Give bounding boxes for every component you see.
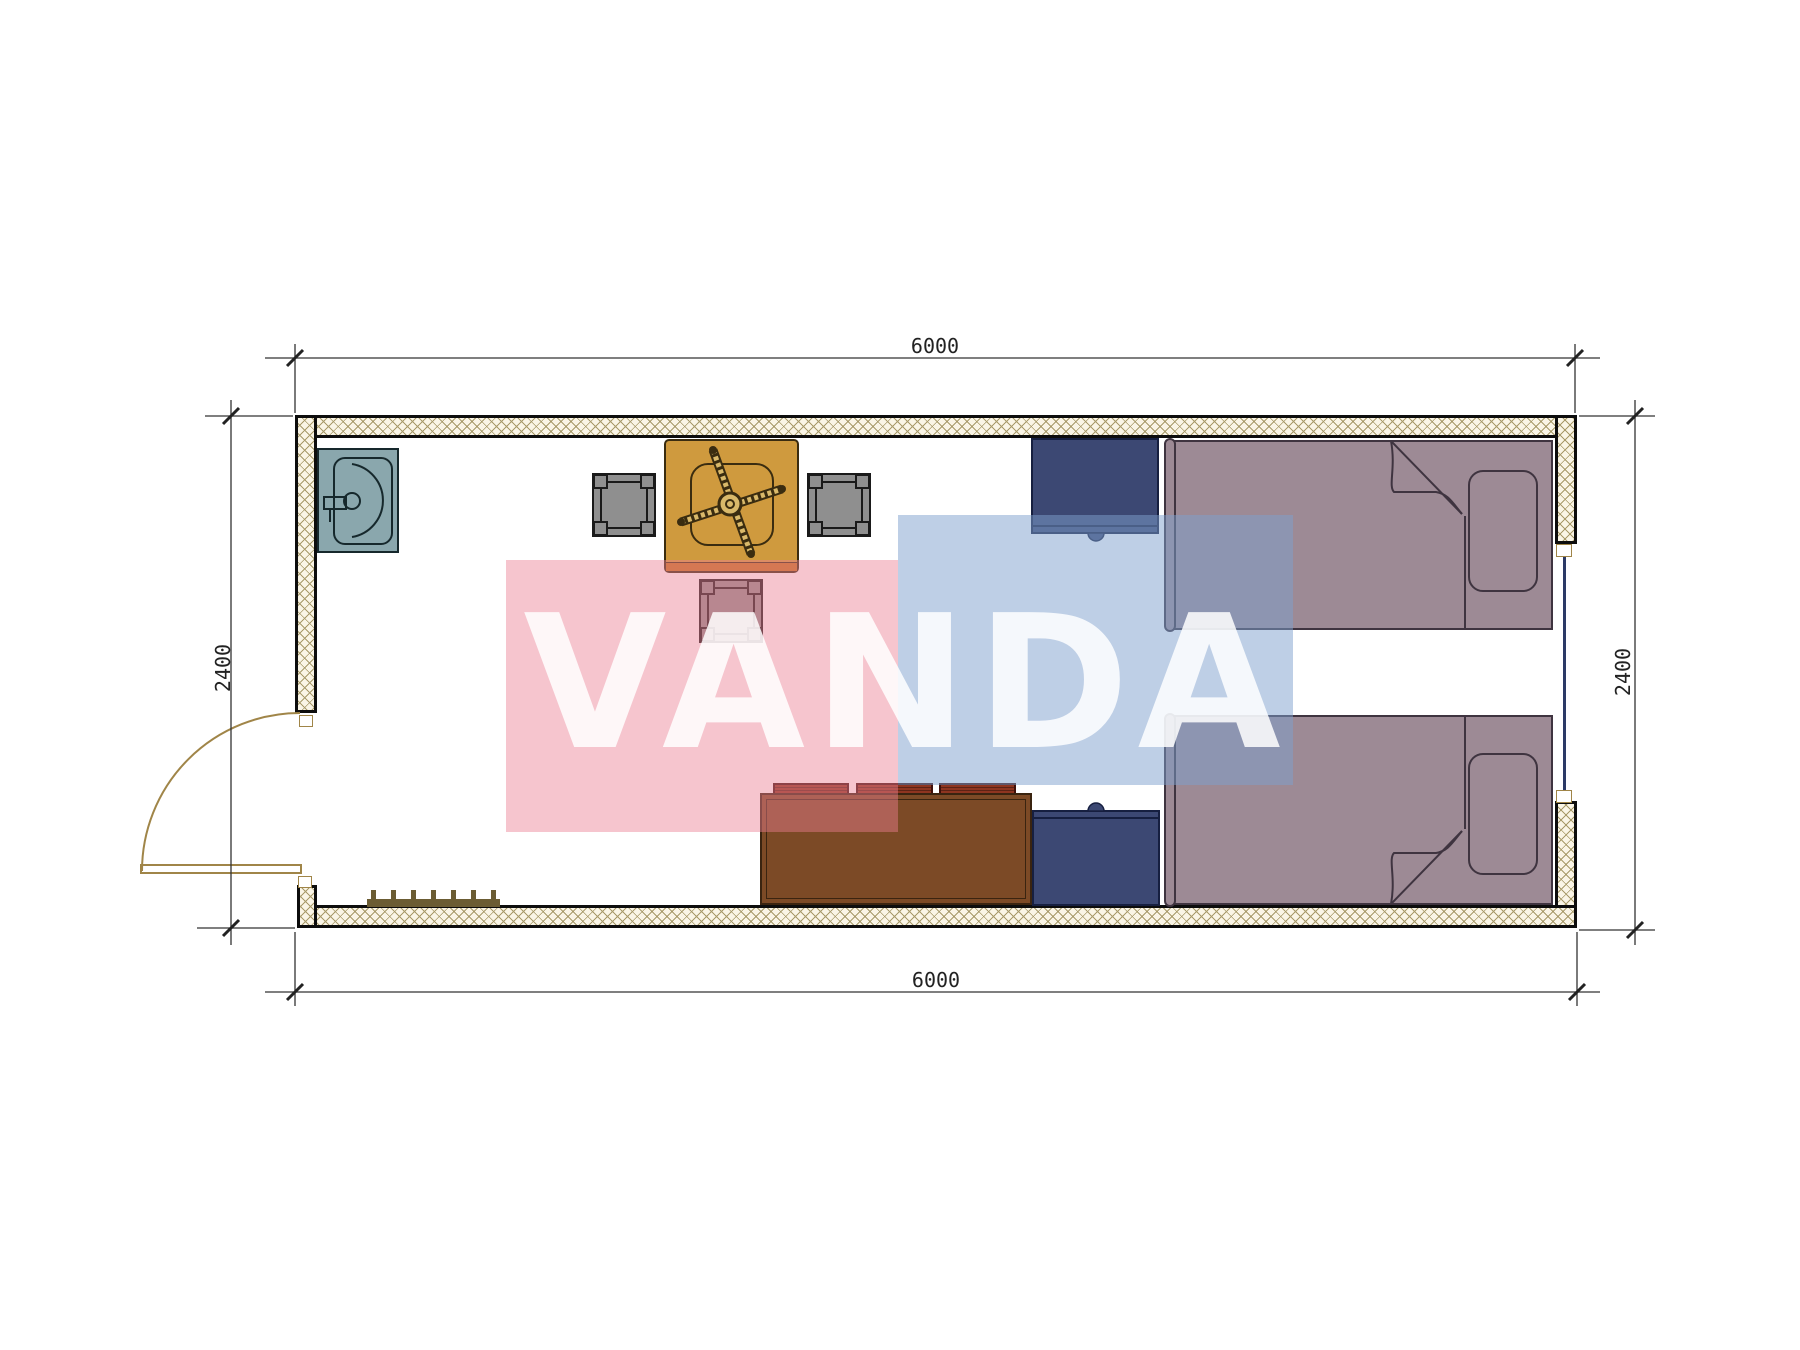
door-leaf bbox=[140, 864, 302, 874]
dim-label-left: 2400 bbox=[211, 644, 235, 692]
radiator-fin bbox=[451, 890, 456, 899]
radiator-fin bbox=[471, 890, 476, 899]
nightstand-front-rail bbox=[1034, 812, 1158, 819]
chair-post bbox=[855, 521, 870, 536]
chair-post bbox=[593, 521, 608, 536]
bed-pillow bbox=[1468, 470, 1538, 592]
window-jamb-bottom bbox=[1556, 790, 1572, 803]
radiator bbox=[367, 890, 500, 907]
dim-label-bottom: 6000 bbox=[912, 968, 960, 992]
chair-right bbox=[807, 473, 871, 537]
nightstand-lower bbox=[1032, 810, 1160, 906]
sink-faucet-stem bbox=[329, 510, 331, 522]
radiator-bar bbox=[367, 899, 500, 907]
chair-post bbox=[640, 474, 655, 489]
table-top-inner bbox=[690, 463, 774, 546]
dim-label-top: 6000 bbox=[911, 334, 959, 358]
window-glazing bbox=[1563, 557, 1566, 790]
sink-faucet-handle bbox=[323, 496, 347, 510]
chair-post bbox=[640, 521, 655, 536]
door-jamb-top bbox=[299, 715, 313, 727]
chair-post bbox=[593, 474, 608, 489]
wall-top bbox=[295, 415, 1577, 438]
door-swing-arc bbox=[142, 713, 300, 871]
wall-bottom bbox=[297, 905, 1577, 928]
chair-post bbox=[808, 521, 823, 536]
chair-post bbox=[808, 474, 823, 489]
door-jamb-bottom bbox=[298, 876, 312, 888]
dining-table bbox=[664, 439, 799, 573]
radiator-fin bbox=[411, 890, 416, 899]
radiator-fin bbox=[391, 890, 396, 899]
watermark-text: VANDA bbox=[523, 591, 1288, 776]
radiator-fin bbox=[371, 890, 376, 899]
bed-pillow bbox=[1468, 753, 1538, 875]
radiator-fin bbox=[431, 890, 436, 899]
plan-canvas: VANDA bbox=[0, 0, 1800, 1350]
radiator-fin bbox=[491, 890, 496, 899]
dim-label-right: 2400 bbox=[1611, 648, 1635, 696]
radiator-fins bbox=[367, 890, 500, 899]
sink bbox=[317, 448, 399, 553]
chair-post bbox=[855, 474, 870, 489]
chair-left bbox=[592, 473, 656, 537]
wall-right-upper bbox=[1555, 415, 1577, 544]
wall-door-stub bbox=[297, 885, 317, 928]
window-jamb-top bbox=[1556, 544, 1572, 557]
wall-left bbox=[295, 415, 317, 713]
